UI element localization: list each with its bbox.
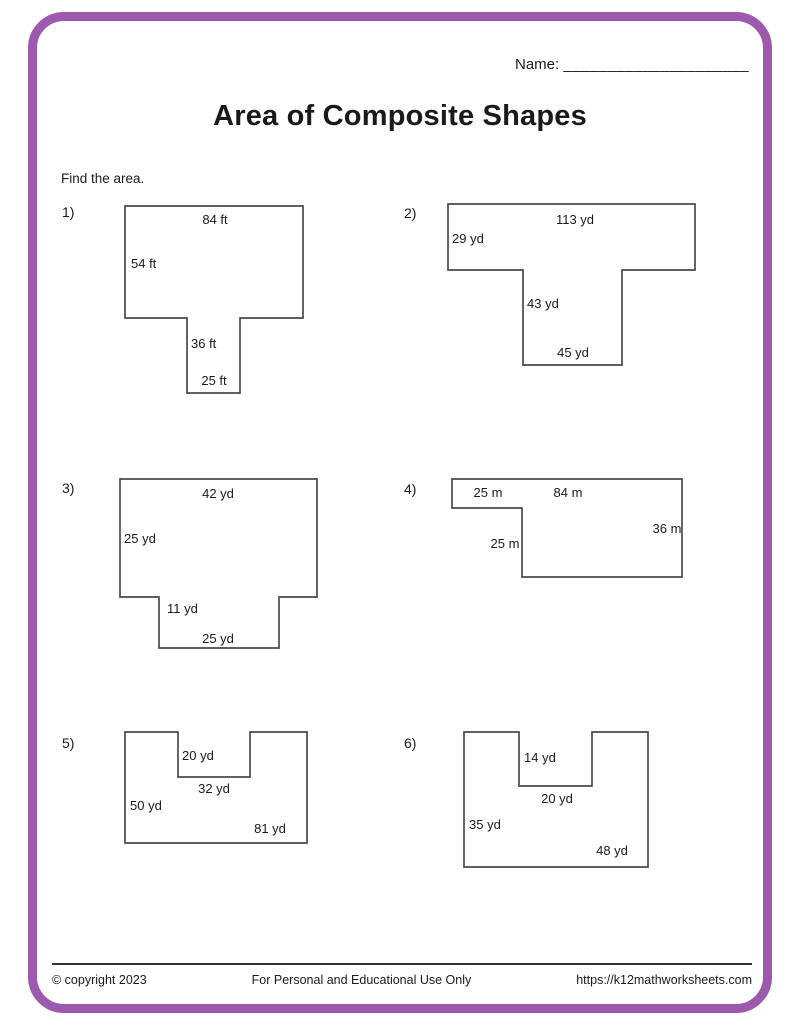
problem-1-number: 1) [62,204,74,220]
problem-6-dimension-label: 35 yd [469,817,501,832]
problem-1-shape-outline [125,206,303,393]
problem-6-dimension-label: 20 yd [541,791,573,806]
problem-6-dimension-label: 14 yd [524,750,556,765]
problem-6-number: 6) [404,735,416,751]
problem-4-dimension-label: 25 m [474,485,503,500]
problem-3-dimension-label: 11 yd [167,601,198,616]
problem-3-dimension-label: 25 yd [202,631,234,646]
problem-1-dimension-label: 84 ft [202,212,228,227]
footer-usage: For Personal and Educational Use Only [252,973,472,987]
problem-1-dimension-label: 54 ft [131,256,157,271]
footer-copyright: © copyright 2023 [52,973,147,987]
worksheet-page: Name: _____________________ Area of Comp… [0,0,800,1035]
problem-2-dimension-label: 29 yd [452,231,484,246]
problem-5-figure: 20 yd32 yd50 yd81 yd [115,725,325,855]
problem-4-dimension-label: 36 m [653,521,682,536]
footer: © copyright 2023 For Personal and Educat… [52,963,752,987]
name-row: Name: _____________________ [515,56,749,73]
problem-5-dimension-label: 32 yd [198,781,230,796]
problem-6-dimension-label: 48 yd [596,843,628,858]
footer-url: https://k12mathworksheets.com [576,973,752,987]
problem-4-dimension-label: 25 m [491,536,520,551]
problem-5-dimension-label: 50 yd [130,798,162,813]
name-blank-line: _____________________ [563,56,749,73]
problem-2-figure: 113 yd29 yd43 yd45 yd [400,200,710,380]
page-title: Area of Composite Shapes [0,100,800,133]
problem-3-figure: 42 yd25 yd11 yd25 yd [115,470,330,660]
problem-5-dimension-label: 81 yd [254,821,286,836]
problem-5-number: 5) [62,735,74,751]
problem-2-dimension-label: 113 yd [556,212,594,227]
problem-5-dimension-label: 20 yd [182,748,214,763]
problem-2-dimension-label: 45 yd [557,345,589,360]
problem-4-figure: 25 m84 m36 m25 m [400,470,700,590]
problem-2-shape-outline [448,204,695,365]
problem-1-figure: 84 ft54 ft36 ft25 ft [120,200,325,405]
problem-4-dimension-label: 84 m [554,485,583,500]
problem-3-shape-outline [120,479,317,648]
instruction-text: Find the area. [61,171,144,186]
problem-3-number: 3) [62,480,74,496]
problem-3-dimension-label: 42 yd [202,486,234,501]
problem-1-dimension-label: 36 ft [191,336,217,351]
name-label: Name: [515,56,559,73]
problem-2-dimension-label: 43 yd [527,296,559,311]
problem-1-dimension-label: 25 ft [201,373,227,388]
problem-3-dimension-label: 25 yd [124,531,156,546]
problem-6-figure: 14 yd20 yd35 yd48 yd [455,725,665,875]
